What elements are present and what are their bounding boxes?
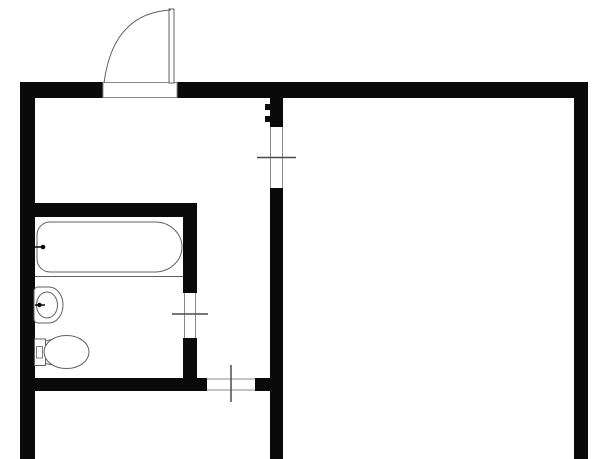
entry-door-leaf xyxy=(169,9,174,83)
bathtub-body xyxy=(37,222,182,272)
bathroom-right-wall-upper xyxy=(183,203,197,293)
bathtub-tap-dot xyxy=(41,245,46,250)
sink-tap-dot xyxy=(37,303,41,307)
floor-plan-canvas xyxy=(0,0,613,459)
floor-plan-svg xyxy=(0,0,613,459)
center-partition-hinge-notch-b xyxy=(265,116,270,122)
entry-door-opening xyxy=(103,83,177,98)
bathroom-bottom-wall xyxy=(20,378,207,391)
bathroom-top-wall xyxy=(35,203,197,217)
center-partition-lower xyxy=(270,188,283,459)
bottom-wall-stub xyxy=(255,378,270,391)
top-wall-right-segment xyxy=(177,82,588,98)
right-exterior-wall xyxy=(574,82,588,459)
left-exterior-wall xyxy=(20,82,35,459)
entry-door-swing-arc xyxy=(104,10,171,83)
center-partition-upper xyxy=(270,98,283,127)
center-partition-hinge-notch-a xyxy=(265,104,270,110)
toilet-bowl xyxy=(44,336,89,369)
